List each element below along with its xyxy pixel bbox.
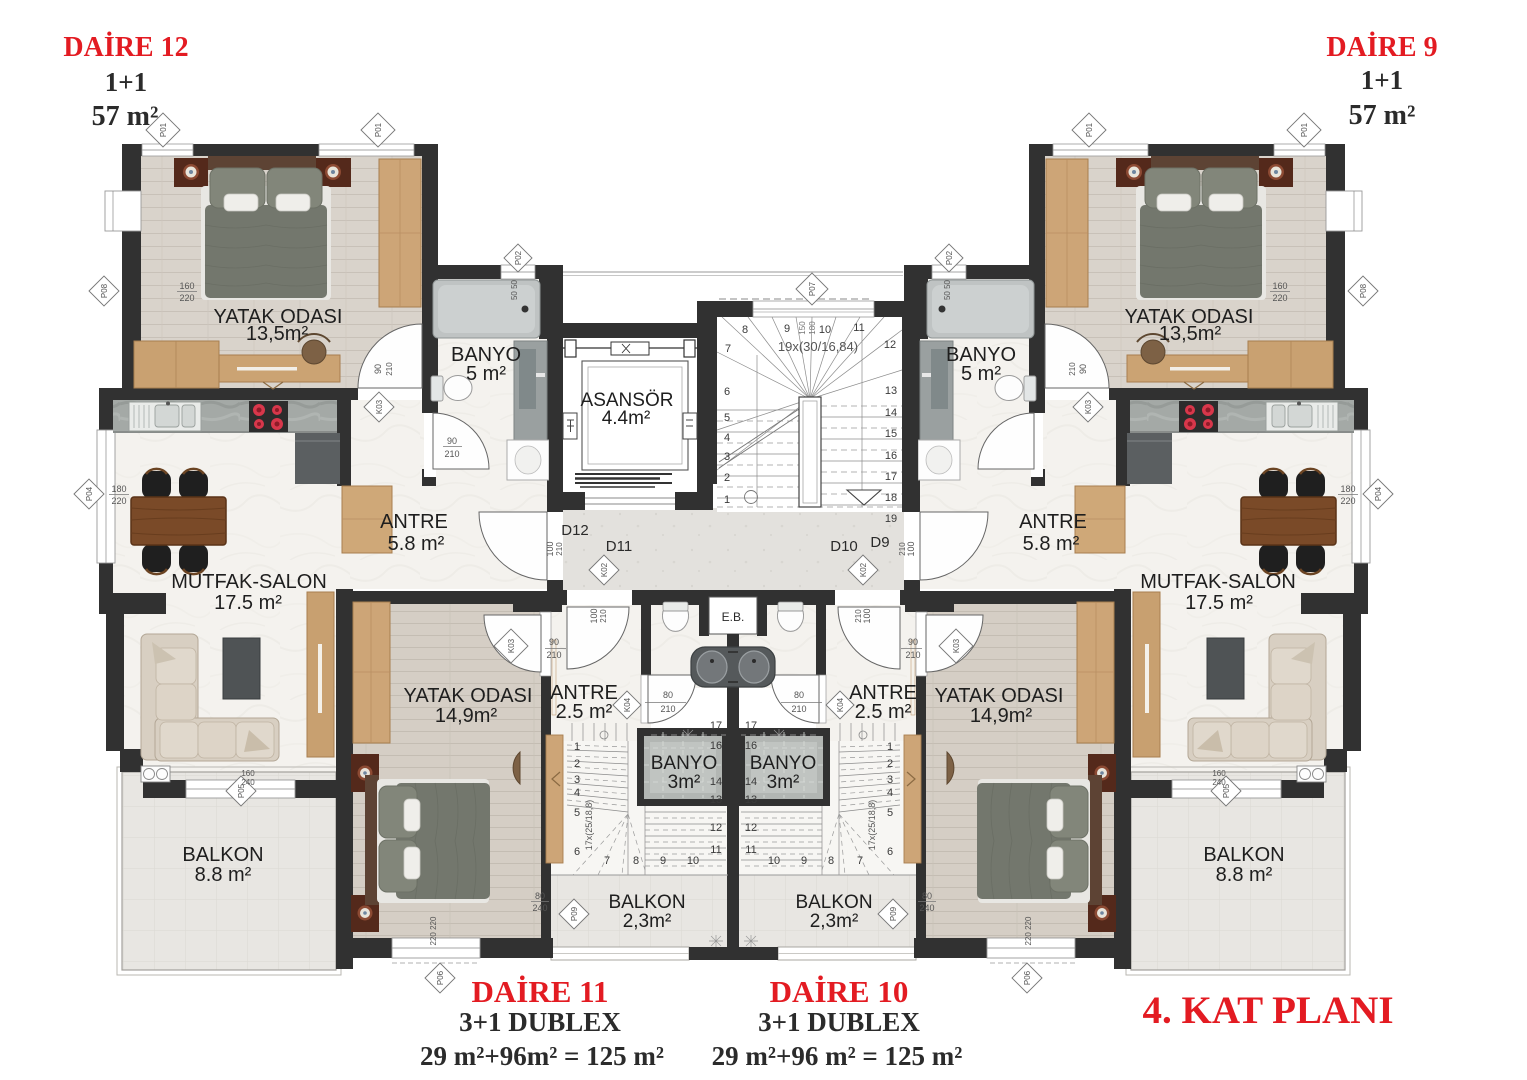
svg-text:1: 1: [724, 494, 730, 506]
svg-text:210: 210: [660, 704, 675, 714]
svg-text:1+1: 1+1: [1361, 65, 1403, 95]
svg-text:160: 160: [1272, 281, 1287, 291]
svg-text:6: 6: [887, 846, 893, 858]
svg-text:13,5m²: 13,5m²: [1159, 323, 1222, 345]
svg-text:15: 15: [885, 428, 897, 440]
svg-text:17.5 m²: 17.5 m²: [214, 592, 282, 614]
svg-text:P02: P02: [945, 250, 954, 265]
svg-text:210: 210: [546, 650, 561, 660]
svg-text:D11: D11: [606, 538, 632, 555]
svg-text:K04: K04: [623, 697, 632, 712]
svg-text:DAİRE 10: DAİRE 10: [770, 974, 909, 1009]
svg-text:7: 7: [725, 343, 731, 355]
svg-text:1: 1: [574, 741, 580, 753]
svg-text:240: 240: [919, 903, 934, 913]
svg-text:18: 18: [885, 492, 897, 504]
svg-text:P05: P05: [237, 783, 246, 798]
svg-text:4: 4: [887, 787, 893, 799]
svg-text:P02: P02: [514, 250, 523, 265]
svg-text:220: 220: [179, 293, 194, 303]
svg-text:17.5 m²: 17.5 m²: [1185, 592, 1253, 614]
svg-text:210: 210: [791, 704, 806, 714]
svg-text:14,9m²: 14,9m²: [970, 705, 1033, 727]
svg-text:2: 2: [724, 472, 730, 484]
svg-text:ANTRE: ANTRE: [380, 511, 448, 533]
svg-text:P01: P01: [1085, 122, 1094, 137]
svg-text:D9: D9: [870, 534, 889, 551]
svg-text:11: 11: [745, 844, 756, 856]
svg-text:7: 7: [604, 855, 610, 867]
svg-text:90: 90: [1078, 364, 1088, 374]
svg-text:DAİRE 11: DAİRE 11: [472, 974, 609, 1009]
svg-text:P09: P09: [889, 906, 898, 921]
svg-text:P07: P07: [808, 281, 817, 296]
svg-text:57 m²: 57 m²: [1349, 100, 1416, 131]
svg-text:K03: K03: [1084, 399, 1093, 414]
svg-text:5.8 m²: 5.8 m²: [1023, 533, 1080, 555]
svg-text:12: 12: [884, 339, 896, 351]
svg-text:4: 4: [574, 787, 580, 799]
svg-text:90: 90: [373, 364, 383, 374]
svg-text:13,5m²: 13,5m²: [246, 323, 309, 345]
svg-text:2: 2: [574, 758, 580, 770]
svg-text:K04: K04: [836, 697, 845, 712]
svg-text:90: 90: [549, 637, 559, 647]
svg-text:29 m²+96 m² = 125 m²: 29 m²+96 m² = 125 m²: [712, 1041, 963, 1071]
svg-text:BALKON: BALKON: [608, 892, 685, 913]
svg-text:12: 12: [710, 822, 722, 834]
svg-text:150: 150: [798, 321, 807, 335]
svg-text:K03: K03: [375, 399, 384, 414]
svg-text:BALKON: BALKON: [182, 844, 263, 866]
svg-text:2: 2: [887, 758, 893, 770]
svg-text:BANYO: BANYO: [651, 753, 718, 774]
svg-text:2,3m²: 2,3m²: [623, 911, 672, 932]
svg-text:YATAK ODASI: YATAK ODASI: [404, 685, 533, 707]
svg-text:29 m²+96m² = 125 m²: 29 m²+96m² = 125 m²: [420, 1041, 664, 1071]
svg-text:3m²: 3m²: [767, 772, 800, 793]
svg-text:ANTRE: ANTRE: [1019, 511, 1087, 533]
svg-text:7: 7: [857, 855, 863, 867]
svg-text:K02: K02: [600, 562, 609, 577]
svg-text:210: 210: [385, 362, 394, 376]
svg-text:14: 14: [745, 776, 757, 788]
svg-text:3: 3: [574, 774, 580, 786]
svg-text:3: 3: [887, 774, 893, 786]
svg-text:180: 180: [1340, 484, 1355, 494]
svg-text:11: 11: [710, 844, 721, 856]
svg-text:5 m²: 5 m²: [466, 363, 506, 385]
svg-text:4. KAT PLANI: 4. KAT PLANI: [1142, 989, 1393, 1032]
svg-text:6: 6: [724, 386, 730, 398]
svg-text:210: 210: [444, 449, 459, 459]
svg-text:80: 80: [663, 690, 673, 700]
svg-text:8.8 m²: 8.8 m²: [1216, 864, 1273, 886]
svg-text:50 50: 50 50: [510, 279, 519, 300]
svg-text:240: 240: [532, 903, 547, 913]
svg-text:220: 220: [1340, 496, 1355, 506]
svg-text:13: 13: [745, 794, 757, 806]
svg-text:17x(25/18,8): 17x(25/18,8): [584, 800, 594, 851]
svg-text:MUTFAK-SALON: MUTFAK-SALON: [171, 571, 327, 593]
svg-text:1: 1: [887, 741, 893, 753]
svg-text:210: 210: [905, 650, 920, 660]
svg-text:19: 19: [885, 513, 897, 525]
svg-text:P05: P05: [1222, 783, 1231, 798]
svg-text:BALKON: BALKON: [1203, 844, 1284, 866]
svg-text:D10: D10: [830, 538, 858, 555]
svg-text:D12: D12: [561, 522, 589, 539]
svg-text:14,9m²: 14,9m²: [435, 705, 498, 727]
svg-text:180: 180: [111, 484, 126, 494]
svg-text:6: 6: [574, 846, 580, 858]
svg-text:P09: P09: [570, 906, 579, 921]
svg-text:80: 80: [794, 690, 804, 700]
svg-text:K02: K02: [859, 562, 868, 577]
svg-text:10: 10: [819, 324, 831, 336]
svg-text:11: 11: [853, 322, 864, 334]
svg-text:4: 4: [724, 432, 730, 444]
svg-text:160: 160: [1212, 769, 1226, 778]
svg-text:100: 100: [906, 541, 916, 556]
svg-text:9: 9: [784, 323, 790, 335]
svg-text:5 m²: 5 m²: [961, 363, 1001, 385]
svg-text:90: 90: [447, 436, 457, 446]
svg-text:5.8 m²: 5.8 m²: [388, 533, 445, 555]
svg-text:220 220: 220 220: [429, 916, 438, 945]
svg-text:BANYO: BANYO: [750, 753, 817, 774]
svg-text:5: 5: [887, 807, 893, 819]
svg-text:2.5 m²: 2.5 m²: [556, 701, 613, 723]
svg-text:210: 210: [599, 609, 608, 623]
svg-text:17: 17: [745, 720, 757, 732]
svg-text:16: 16: [885, 450, 897, 462]
svg-text:160: 160: [179, 281, 194, 291]
svg-text:19x(30/16,84): 19x(30/16,84): [778, 339, 858, 354]
svg-text:P04: P04: [1374, 486, 1383, 501]
svg-text:17: 17: [710, 720, 722, 732]
svg-text:100: 100: [862, 608, 872, 623]
svg-text:MUTFAK-SALON: MUTFAK-SALON: [1140, 571, 1296, 593]
svg-text:14: 14: [710, 776, 722, 788]
svg-text:P06: P06: [436, 970, 445, 985]
svg-text:YATAK ODASI: YATAK ODASI: [935, 685, 1064, 707]
svg-text:90: 90: [908, 637, 918, 647]
svg-text:P01: P01: [374, 122, 383, 137]
svg-text:DAİRE 9: DAİRE 9: [1326, 32, 1437, 63]
svg-text:210: 210: [898, 542, 907, 556]
svg-text:1+1: 1+1: [105, 67, 147, 97]
svg-text:16: 16: [745, 740, 757, 752]
svg-text:E.B.: E.B.: [722, 610, 745, 624]
svg-text:P01: P01: [159, 122, 168, 137]
svg-text:210: 210: [555, 542, 564, 556]
svg-text:P01: P01: [1300, 122, 1309, 137]
svg-text:P06: P06: [1023, 970, 1032, 985]
svg-text:2,3m²: 2,3m²: [810, 911, 859, 932]
svg-text:8: 8: [828, 855, 834, 867]
svg-text:80: 80: [535, 891, 545, 901]
svg-text:3: 3: [724, 451, 730, 463]
svg-text:220: 220: [111, 496, 126, 506]
svg-text:8: 8: [742, 324, 748, 336]
svg-text:17x(25/18,8): 17x(25/18,8): [867, 800, 877, 851]
svg-text:5: 5: [724, 412, 730, 424]
svg-text:100: 100: [589, 608, 599, 623]
svg-text:220: 220: [1272, 293, 1287, 303]
svg-text:160: 160: [241, 769, 255, 778]
svg-text:9: 9: [660, 855, 666, 867]
svg-text:100: 100: [545, 541, 555, 556]
svg-text:14: 14: [885, 407, 897, 419]
svg-text:8: 8: [633, 855, 639, 867]
svg-text:16: 16: [710, 740, 722, 752]
svg-text:210: 210: [854, 609, 863, 623]
svg-text:3+1 DUBLEX: 3+1 DUBLEX: [459, 1007, 621, 1037]
svg-text:80: 80: [922, 891, 932, 901]
svg-text:13: 13: [885, 385, 897, 397]
svg-text:210: 210: [1068, 362, 1077, 376]
svg-text:12: 12: [745, 822, 757, 834]
svg-text:13: 13: [710, 794, 722, 806]
svg-text:K03: K03: [952, 638, 961, 653]
svg-text:K03: K03: [507, 638, 516, 653]
svg-text:220 220: 220 220: [1024, 916, 1033, 945]
svg-text:P04: P04: [85, 486, 94, 501]
svg-text:9: 9: [801, 855, 807, 867]
svg-text:DAİRE 12: DAİRE 12: [63, 32, 188, 63]
svg-text:10: 10: [768, 855, 780, 867]
svg-text:10: 10: [687, 855, 699, 867]
svg-text:50 50: 50 50: [943, 279, 952, 300]
svg-text:8.8 m²: 8.8 m²: [195, 864, 252, 886]
svg-text:BALKON: BALKON: [795, 892, 872, 913]
svg-text:5: 5: [574, 807, 580, 819]
svg-text:17: 17: [885, 471, 897, 483]
svg-text:2.5 m²: 2.5 m²: [855, 701, 912, 723]
svg-text:3m²: 3m²: [668, 772, 701, 793]
svg-text:3+1 DUBLEX: 3+1 DUBLEX: [758, 1007, 920, 1037]
svg-text:P08: P08: [100, 283, 109, 298]
svg-text:180: 180: [808, 321, 817, 335]
svg-text:57 m²: 57 m²: [92, 101, 159, 132]
svg-text:P08: P08: [1359, 283, 1368, 298]
svg-text:4.4m²: 4.4m²: [602, 408, 651, 429]
